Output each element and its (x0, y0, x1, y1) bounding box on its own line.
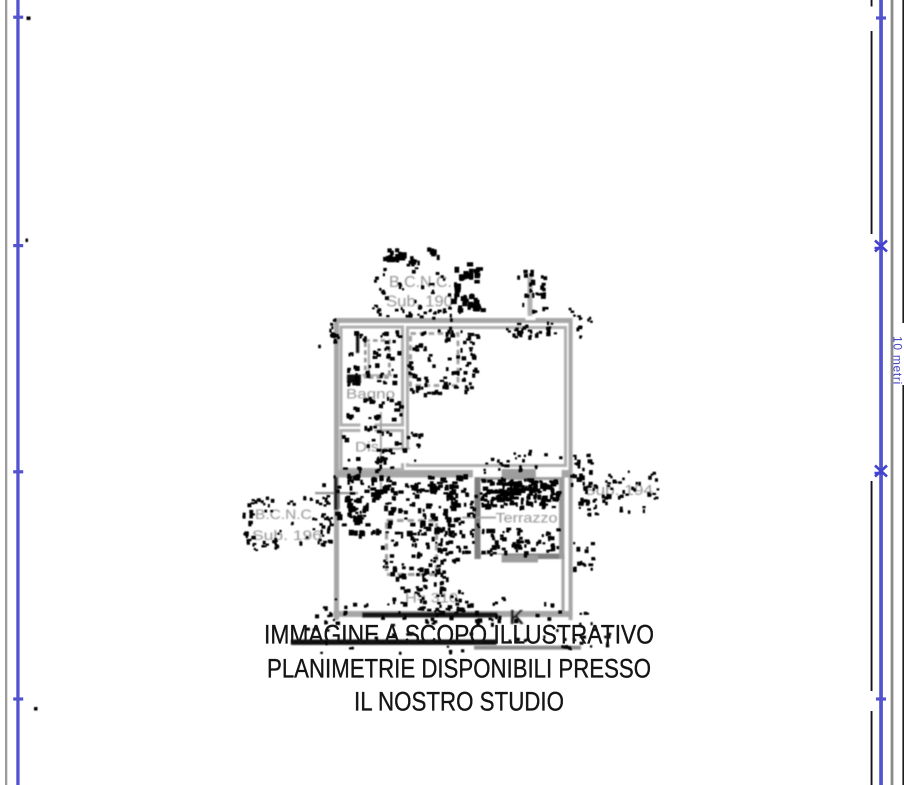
svg-text:PLANIMETRIE DISPONIBILI PRESSO: PLANIMETRIE DISPONIBILI PRESSO (267, 654, 651, 684)
svg-text:IMMAGINE A SCOPO ILLUSTRATIVO: IMMAGINE A SCOPO ILLUSTRATIVO (264, 620, 654, 650)
svg-text:IL NOSTRO STUDIO: IL NOSTRO STUDIO (354, 687, 564, 717)
svg-text:H= 310: H= 310 (405, 590, 458, 606)
svg-text:Sub. 196: Sub. 196 (252, 527, 322, 543)
svg-text:10 metri: 10 metri (891, 336, 904, 385)
svg-text:B.C.N.C.: B.C.N.C. (255, 506, 316, 522)
svg-text:Terrazzo: Terrazzo (496, 510, 558, 526)
